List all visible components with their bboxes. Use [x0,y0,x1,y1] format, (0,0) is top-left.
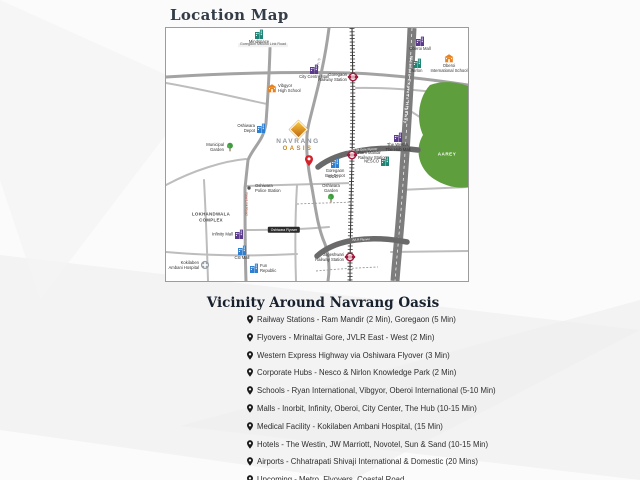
ram-mandir-railway-station-icon [347,150,358,161]
oshiwara-depot-label: Oshiwara Depot [237,123,255,134]
oshiwara-depot-icon [257,123,266,133]
infinity-mall-icon [235,229,244,239]
oshiwara-garden-label: Oshiwara Garden [322,183,340,194]
location-pin-icon [247,352,253,362]
municipal-garden-icon [226,143,234,152]
map-landmarks: Goregaon Mulund Link RoadWestern Express… [166,28,468,281]
location-pin-icon [247,441,253,451]
location-pin-icon [247,387,253,397]
navrang-location-pin-icon [305,155,313,166]
vicinity-item: Malls - Inorbit, Infinity, Oberoi, City … [247,405,496,415]
infinity-mall-label: Infinity Mall [212,231,233,236]
vicinity-item-text: Western Express Highway via Oshiwara Fly… [257,352,450,360]
vicinity-item-text: Flyovers - Mrinaltai Gore, JVLR East - W… [257,334,435,342]
vicinity-item: Hotels - The Westin, JW Marriott, Novote… [247,441,496,451]
citi-mall-label: Citi Mall [235,255,250,260]
location-pin-icon [247,334,253,344]
oshiwara-flyover-label: Oshiwara Flyover [268,227,300,233]
nirlon-label: Nirlon [412,68,423,73]
vibgyor-high-school-icon [267,84,277,93]
aarey-label: AAREY [438,153,457,158]
nirlon-icon [413,58,422,68]
location-pin-icon [247,423,253,433]
location-pin-icon [247,316,253,326]
kokilaben-ambani-hospital-label: Kokilaben Ambani Hospital [169,260,200,271]
oshiwara-garden-icon [327,194,335,203]
fun-republic-icon [250,263,259,273]
oberoi-international-school-label: Oberoi International School [430,63,467,74]
mindspace-label: Mindspace [249,39,269,44]
vicinity-item: Western Express Highway via Oshiwara Fly… [247,352,496,362]
vicinity-item: Airports - Chhatrapati Shivaji Internati… [247,458,496,468]
vicinity-item-text: Upcoming - Metro, Flyovers, Coastal Road [257,476,404,480]
oberoi-mall-icon [416,36,425,46]
oberoi-international-school-icon [444,54,454,63]
vicinity-item: Medical Facility - Kokilaben Ambani Hosp… [247,423,496,433]
vibgyor-high-school-label: Vibgyor High School [278,83,301,94]
vicinity-item: Upcoming - Metro, Flyovers, Coastal Road [247,476,496,480]
kokilaben-ambani-hospital-icon [201,261,210,270]
location-pin-icon [247,405,253,415]
oshiwara-police-station-icon [247,186,252,191]
navrang-diamond-icon [290,122,306,138]
jogeshwari-railway-station-label: Jogeshwari Railway Station [315,252,344,263]
vicinity-item-text: Railway Stations - Ram Mandir (2 Min), G… [257,316,456,324]
goregaon-bus-depot-icon [331,158,340,168]
oberoi-mall-label: Oberoi Mall [409,46,430,51]
vicinity-item-text: Schools - Ryan International, Vibgyor, O… [257,387,496,395]
lokhandwala-complex-label: LOKHANDWALA COMPLEX [192,211,230,222]
page-title: Location Map [170,6,289,24]
jogeshwari-railway-station-icon [345,252,356,263]
weh-road-label: Western Express Highway [403,56,413,124]
vicinity-item-text: Malls - Inorbit, Infinity, Oberoi, City … [257,405,477,413]
odc-label: ODC [328,174,338,180]
vicinity-item: Flyovers - Mrinaltai Gore, JVLR East - W… [247,334,496,344]
location-pin-icon [247,458,253,468]
ram-mandir-railway-station-label: Ram Mandir Railway Station [358,150,387,161]
vicinity-item-text: Corporate Hubs - Nesco & Nirlon Knowledg… [257,369,456,377]
vicinity-item: Schools - Ryan International, Vibgyor, O… [247,387,496,397]
vicinity-item-text: Hotels - The Westin, JW Marriott, Novote… [257,441,488,449]
goregaon-railway-station-label: Goregaon Railway Station [318,72,347,83]
navrang-name-oasis: OASIS [266,146,330,153]
vicinity-list: Railway Stations - Ram Mandir (2 Min), G… [247,316,496,480]
page: Location Map [0,0,640,480]
map-panel: Goregaon Mulund Link RoadWestern Express… [165,27,469,282]
vicinity-item-text: Airports - Chhatrapati Shivaji Internati… [257,458,478,466]
citi-mall-icon [238,245,247,255]
mindspace-icon [255,29,264,39]
location-pin-icon [247,476,253,480]
vicinity-heading: Vicinity Around Navrang Oasis [207,295,439,311]
vicinity-item-text: Medical Facility - Kokilaben Ambani Hosp… [257,423,443,431]
location-pin-icon [247,369,253,379]
vicinity-item: Corporate Hubs - Nesco & Nirlon Knowledg… [247,369,496,379]
fun-republic-label: Fun Republic [260,263,276,274]
new-link-road-label: New Link Road [244,193,247,216]
jvlr-flyover-label: JVLR Flyover [352,238,370,242]
oshiwara-police-station-label: Oshiwara Police Station [255,183,281,194]
the-westin-the-hub-mall-label: The Westin, The Hub Mall [386,142,411,153]
navrang-oasis-logo: NAVRANG OASIS [266,124,330,153]
goregaon-railway-station-icon [348,72,359,83]
municipal-garden-label: Municipal Garden [206,142,224,153]
vicinity-item: Railway Stations - Ram Mandir (2 Min), G… [247,316,496,326]
the-westin-the-hub-mall-icon [394,132,403,142]
navrang-name: NAVRANG [266,138,330,146]
